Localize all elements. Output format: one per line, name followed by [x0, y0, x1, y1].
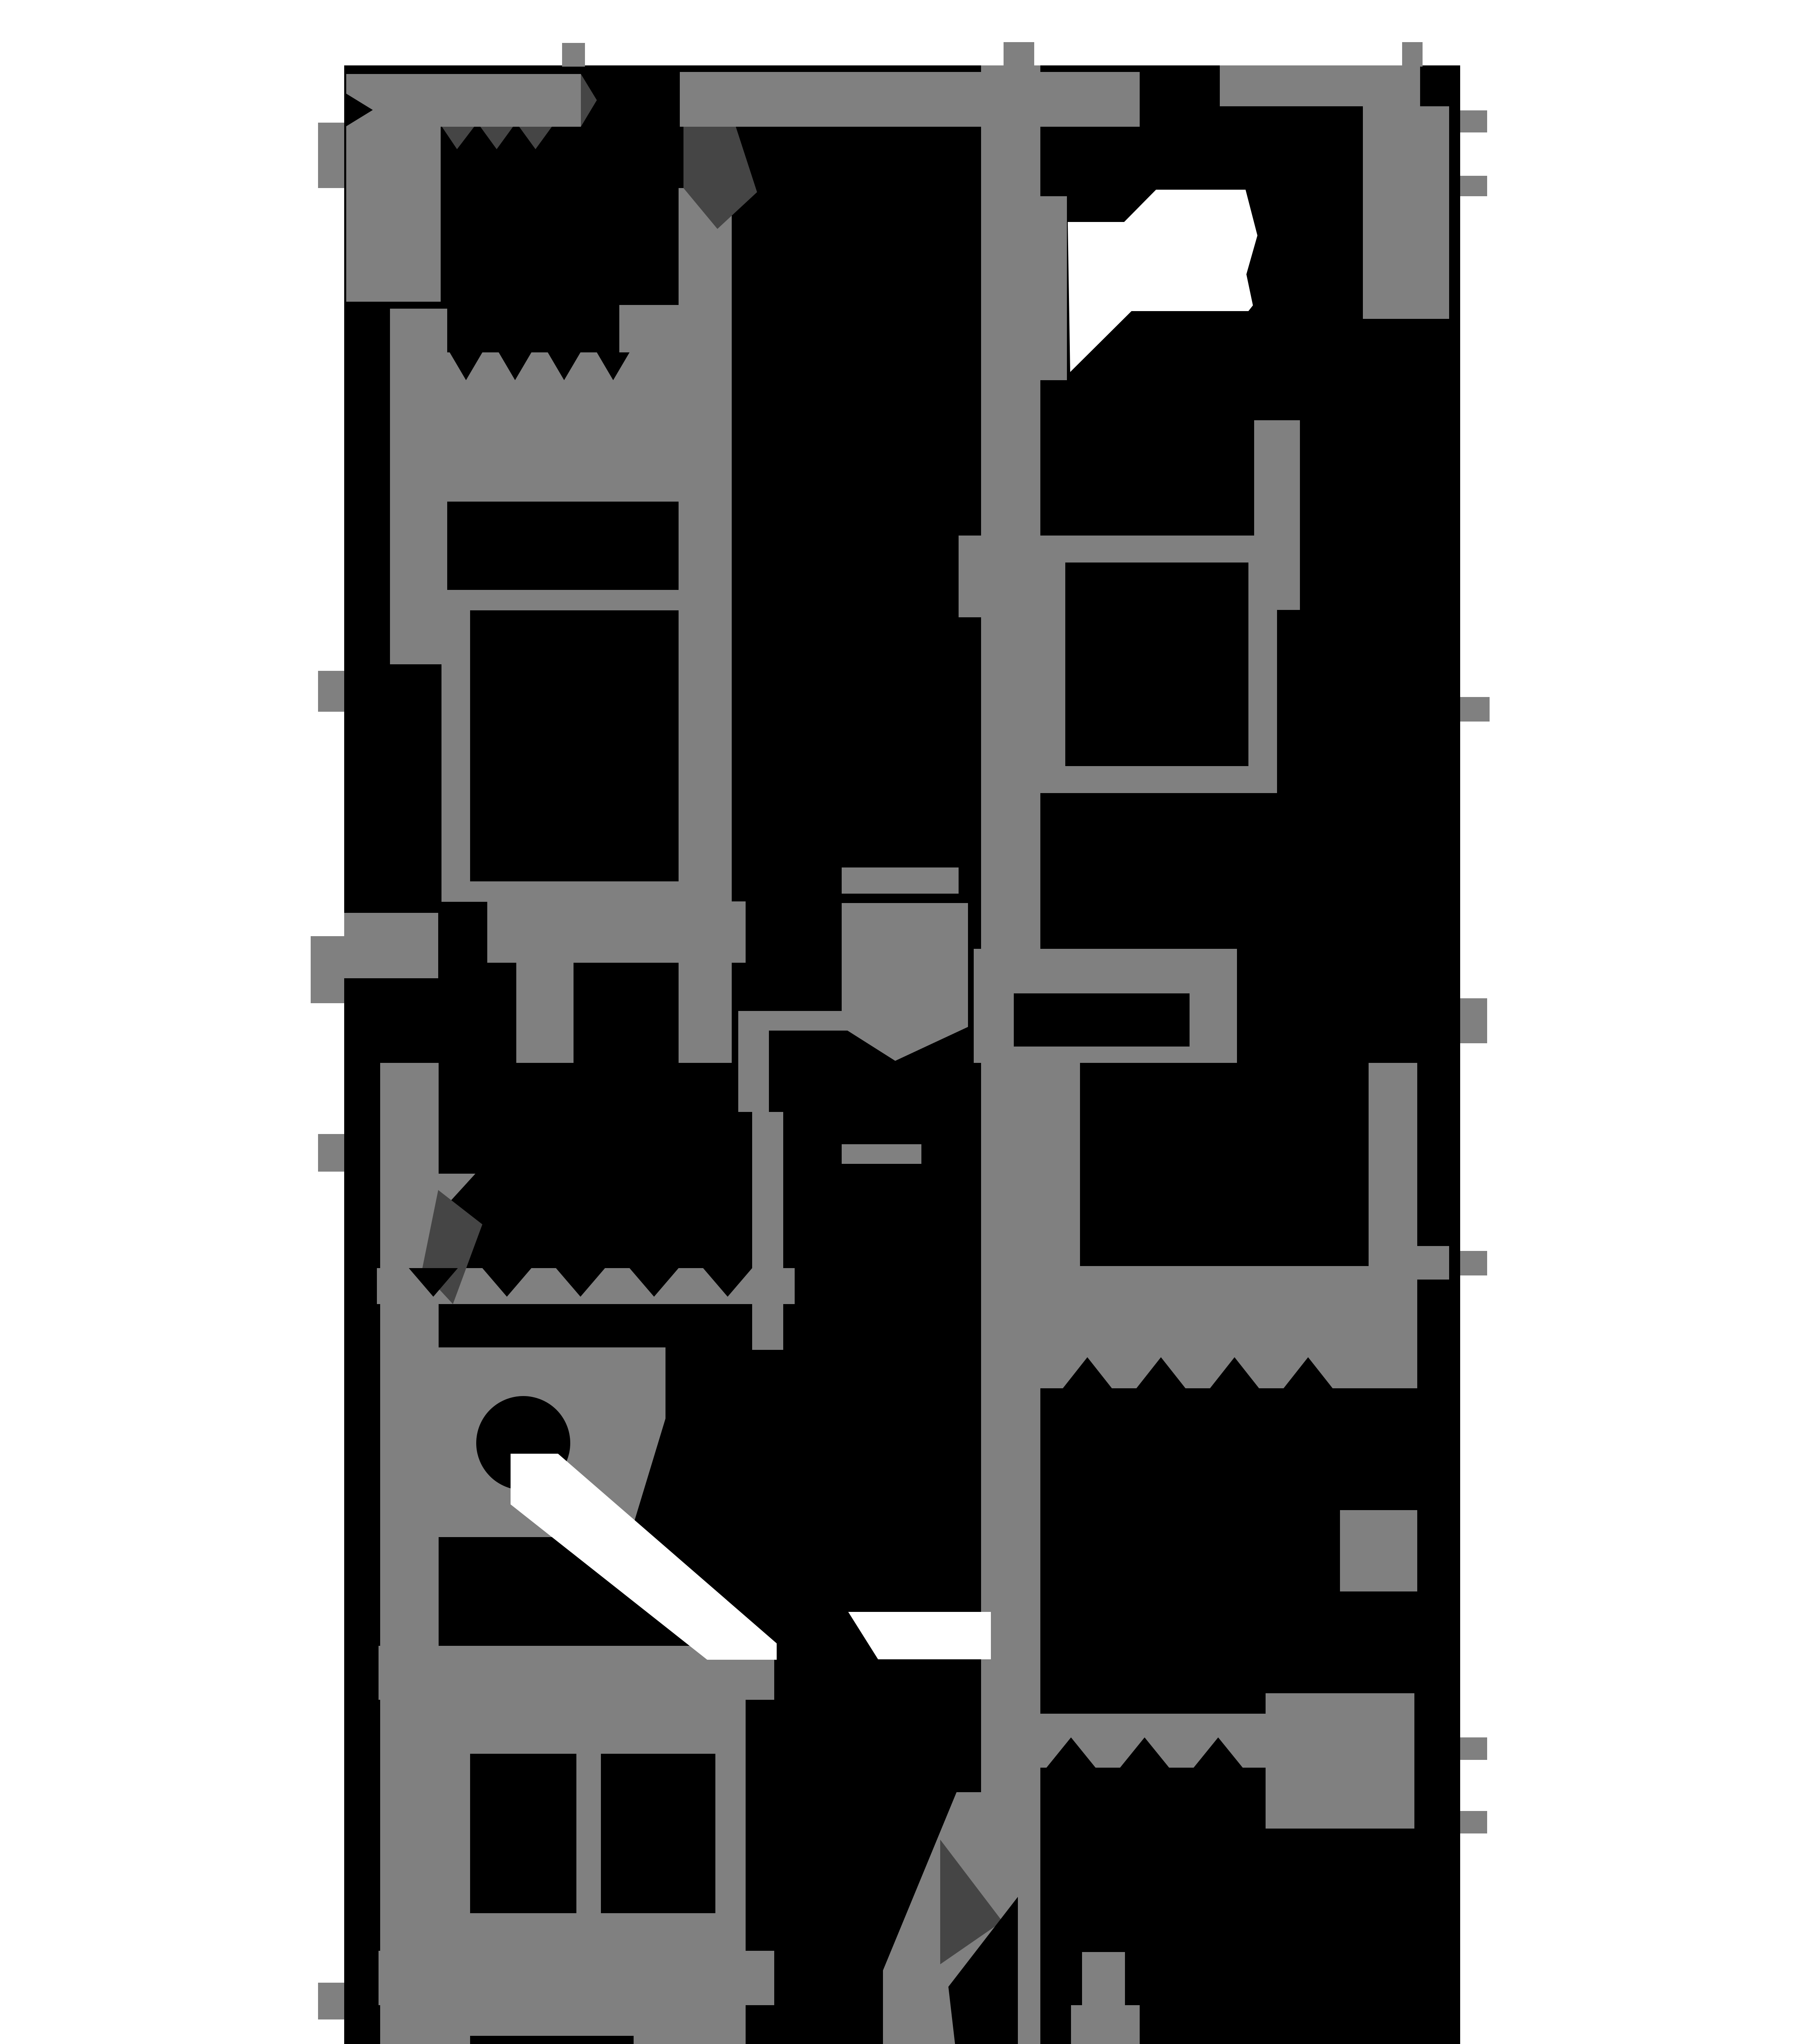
top-left-bar: [346, 74, 581, 127]
tab-left-3: [311, 936, 344, 1003]
left-strip: [380, 1063, 439, 2044]
tab-right-6: [1460, 1737, 1487, 1760]
furniture-3: [470, 2036, 634, 2044]
tab-left-1: [318, 123, 344, 188]
corridor-seg: [1071, 2005, 1140, 2044]
tab-right-3: [1460, 697, 1490, 722]
top-tab-1: [562, 43, 585, 67]
right-stub: [1403, 1246, 1449, 1280]
top-tab-3: [1402, 42, 1423, 67]
tab-right-4: [1460, 998, 1487, 1043]
corridor-west-widening-up: [959, 536, 983, 617]
mid-stub: [516, 963, 574, 1063]
top-right-bar: [1220, 65, 1420, 106]
tab-right-1: [1460, 110, 1487, 132]
page: [0, 0, 1797, 2044]
bar-c: [1040, 536, 1266, 563]
center-right-bar: [1002, 1266, 1414, 1388]
tab-left-4: [318, 1134, 344, 1172]
tab-right-7: [1460, 1811, 1487, 1833]
frame2-left: [1037, 563, 1065, 793]
small-right-room: [1340, 1510, 1417, 1591]
corridor-east-widening: [1038, 196, 1067, 380]
top-right-col: [1363, 106, 1449, 319]
top-tab-2: [1004, 42, 1034, 67]
furniture-1: [470, 1754, 576, 1913]
center-right-col: [1002, 1266, 1037, 1483]
frame-bottom: [441, 881, 723, 902]
strip-a: [738, 1011, 769, 1112]
tab-left-2: [318, 671, 344, 712]
tab-right-5: [1460, 1251, 1487, 1275]
tab-left-5: [318, 1983, 344, 2019]
right-room-blob: [1266, 1693, 1414, 1829]
frame2-bottom: [1037, 766, 1277, 793]
frame-right: [700, 610, 723, 901]
east-room-band: [974, 949, 1237, 976]
tab-right-2: [1460, 176, 1487, 196]
sawtooth-band-a: [842, 867, 959, 894]
strip-b: [752, 1112, 783, 1350]
top-left-col: [346, 123, 441, 302]
wide-room: [390, 352, 723, 502]
furniture-2: [601, 1754, 715, 1913]
frame-left: [441, 610, 470, 901]
furniture-6: [1014, 993, 1190, 1047]
floorplan-svg: [0, 0, 1797, 2044]
strip-c: [1254, 420, 1300, 610]
top-center-bar: [680, 72, 1140, 127]
thin-bar: [441, 590, 717, 610]
bar-b: [842, 1144, 921, 1164]
right-strip: [1369, 1063, 1417, 1388]
mid-band: [487, 901, 746, 963]
left-block: [344, 913, 438, 978]
